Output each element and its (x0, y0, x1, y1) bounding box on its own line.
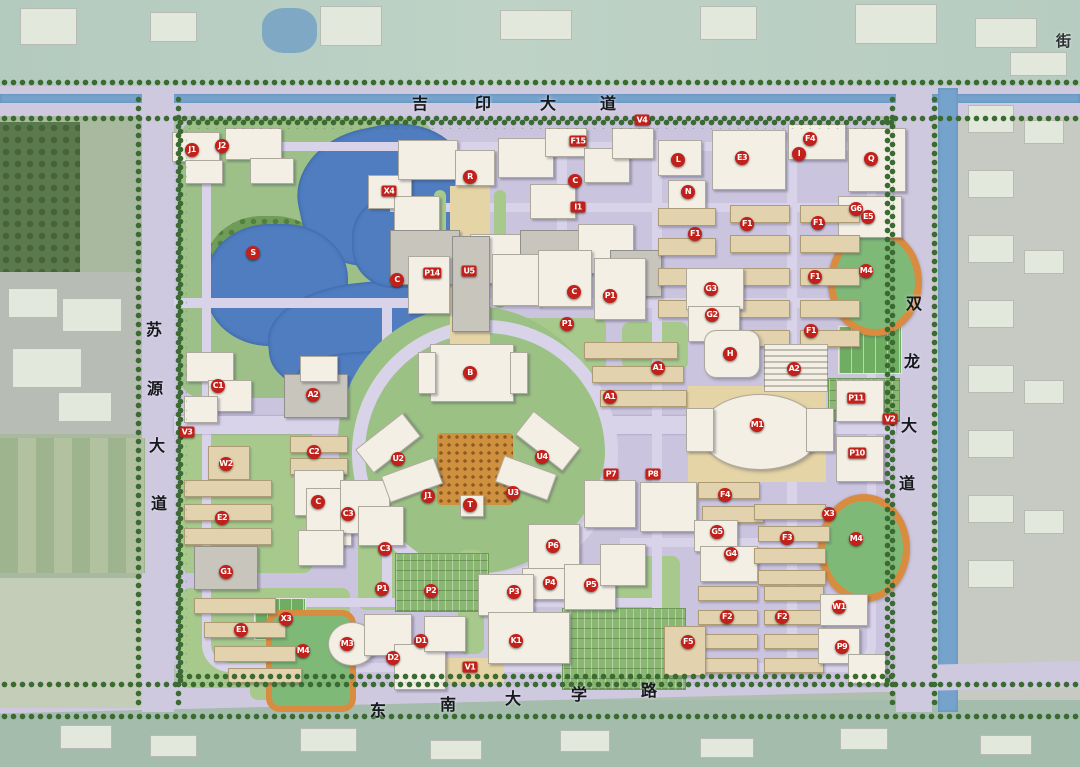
map-marker: F1 (688, 227, 702, 241)
map-marker: J1 (185, 143, 199, 157)
map-marker: P3 (507, 585, 521, 599)
campus-master-plan-map: 吉印大道双龙大道苏源大道东南大学路 J1J2X4SRV4F15CLE3NI1F4… (0, 0, 1080, 767)
map-marker: X3 (822, 507, 836, 521)
map-marker: P1 (560, 317, 574, 331)
map-marker: J2 (215, 139, 229, 153)
map-marker: W1 (832, 600, 846, 614)
map-marker: E2 (215, 511, 229, 525)
map-marker: H (723, 347, 737, 361)
map-marker: S (246, 246, 260, 260)
map-marker: E5 (861, 210, 875, 224)
map-marker: G1 (219, 565, 233, 579)
map-marker: M4 (859, 264, 873, 278)
map-marker: N (681, 185, 695, 199)
map-marker: A2 (306, 388, 320, 402)
building-markers-layer: J1J2X4SRV4F15CLE3NI1F4IQG6E5F1F1F1F1F1M4… (0, 0, 1080, 767)
map-marker: F1 (808, 270, 822, 284)
map-marker: A1 (651, 361, 665, 375)
map-marker: E1 (234, 623, 248, 637)
map-marker: F1 (804, 324, 818, 338)
map-marker: B (463, 366, 477, 380)
map-marker: I1 (571, 202, 586, 213)
map-marker: C3 (378, 542, 392, 556)
map-marker: V2 (883, 414, 898, 425)
map-marker: K1 (509, 634, 523, 648)
map-marker: P14 (423, 268, 441, 279)
map-marker: P1 (603, 289, 617, 303)
map-marker: P1 (375, 582, 389, 596)
map-marker: F4 (718, 488, 732, 502)
map-marker: V1 (463, 662, 478, 673)
map-marker: X4 (382, 186, 397, 197)
map-marker: V3 (180, 427, 195, 438)
map-marker: G2 (705, 308, 719, 322)
map-marker: F4 (803, 132, 817, 146)
map-marker: U3 (506, 486, 520, 500)
map-marker: F2 (775, 610, 789, 624)
map-marker: M1 (750, 418, 764, 432)
map-marker: G5 (710, 525, 724, 539)
map-marker: C (567, 285, 581, 299)
map-marker: J1 (421, 489, 435, 503)
map-marker: C (568, 174, 582, 188)
map-marker: F3 (780, 531, 794, 545)
map-marker: F1 (811, 216, 825, 230)
map-marker: M4 (296, 644, 310, 658)
map-marker: C (311, 495, 325, 509)
map-marker: V4 (635, 115, 650, 126)
map-marker: P11 (847, 393, 865, 404)
map-marker: F1 (740, 217, 754, 231)
map-marker: F2 (720, 610, 734, 624)
map-marker: X3 (279, 612, 293, 626)
map-marker: A1 (603, 390, 617, 404)
map-marker: U4 (535, 450, 549, 464)
map-marker: L (671, 153, 685, 167)
map-marker: P6 (546, 539, 560, 553)
map-marker: C (390, 273, 404, 287)
map-marker: U5 (462, 266, 477, 277)
map-marker: P10 (848, 448, 866, 459)
map-marker: C3 (341, 507, 355, 521)
map-marker: G4 (724, 547, 738, 561)
map-marker: I (792, 147, 806, 161)
map-marker: U2 (391, 452, 405, 466)
map-marker: P2 (424, 584, 438, 598)
map-marker: P4 (543, 576, 557, 590)
map-marker: A2 (787, 362, 801, 376)
map-marker: D2 (386, 651, 400, 665)
map-marker: P5 (584, 578, 598, 592)
map-marker: G3 (704, 282, 718, 296)
map-marker: R (463, 170, 477, 184)
map-marker: F5 (681, 635, 695, 649)
map-marker: W2 (219, 457, 233, 471)
map-marker: F15 (569, 136, 586, 147)
map-marker: D1 (414, 634, 428, 648)
map-marker: P8 (646, 469, 661, 480)
map-marker: C1 (211, 379, 225, 393)
map-marker: P9 (835, 640, 849, 654)
map-marker: E3 (735, 151, 749, 165)
map-marker: M4 (849, 532, 863, 546)
map-marker: P7 (604, 469, 619, 480)
map-marker: Q (864, 152, 878, 166)
map-marker: T (463, 498, 477, 512)
map-marker: C2 (307, 445, 321, 459)
map-marker: M3 (340, 637, 354, 651)
